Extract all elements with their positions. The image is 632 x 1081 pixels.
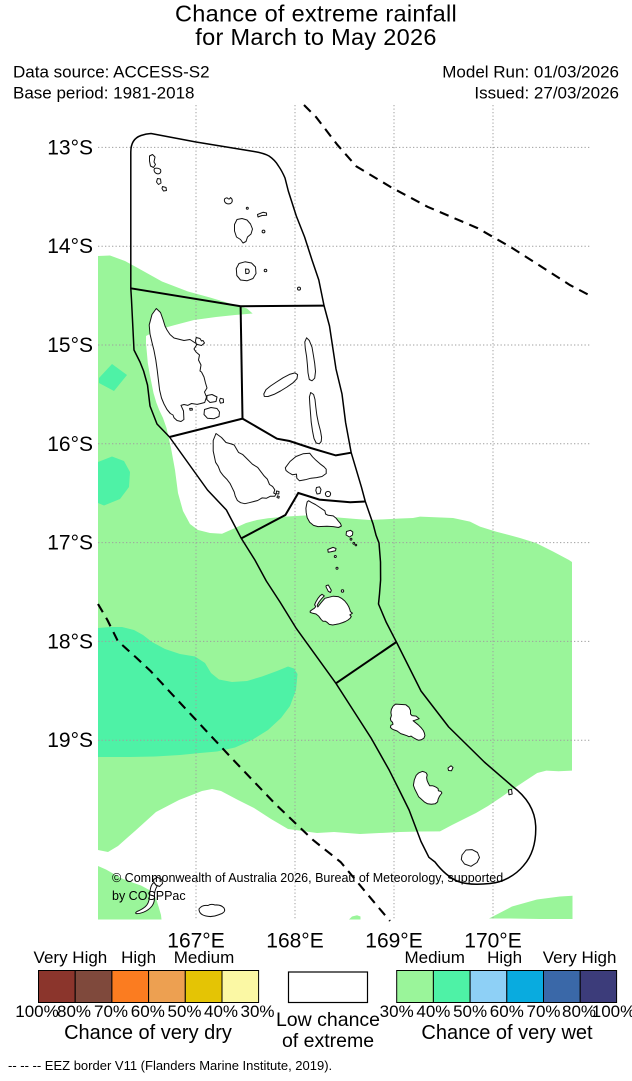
- svg-text:15°S: 15°S: [47, 334, 93, 357]
- svg-text:by COSPPac: by COSPPac: [112, 889, 186, 903]
- svg-text:of extreme: of extreme: [282, 1030, 374, 1052]
- svg-text:168°E: 168°E: [266, 930, 323, 953]
- svg-text:19°S: 19°S: [47, 729, 93, 752]
- svg-text:Base period: 1981-2018: Base period: 1981-2018: [13, 84, 194, 103]
- svg-text:Chance of very dry: Chance of very dry: [64, 1022, 232, 1044]
- svg-text:100%: 100%: [15, 1002, 58, 1021]
- svg-text:Very High: Very High: [34, 948, 108, 967]
- svg-text:30%: 30%: [380, 1002, 414, 1021]
- svg-text:Medium: Medium: [174, 948, 234, 967]
- svg-text:Data source: ACCESS-S2: Data source: ACCESS-S2: [13, 63, 210, 82]
- svg-text:30%: 30%: [240, 1002, 274, 1021]
- svg-text:Model Run: 01/03/2026: Model Run: 01/03/2026: [442, 63, 619, 82]
- svg-text:50%: 50%: [167, 1002, 201, 1021]
- svg-text:Medium: Medium: [404, 948, 464, 967]
- svg-text:40%: 40%: [204, 1002, 238, 1021]
- svg-text:High: High: [121, 948, 156, 967]
- svg-text:16°S: 16°S: [47, 433, 93, 456]
- svg-text:70%: 70%: [526, 1002, 560, 1021]
- svg-text:60%: 60%: [490, 1002, 524, 1021]
- svg-text:Chance of extreme rainfall: Chance of extreme rainfall: [175, 1, 457, 27]
- svg-text:High: High: [487, 948, 522, 967]
- svg-text:© Commonwealth of Australia 20: © Commonwealth of Australia 2026, Bureau…: [112, 871, 503, 885]
- svg-text:70%: 70%: [94, 1002, 128, 1021]
- svg-text:50%: 50%: [453, 1002, 487, 1021]
- svg-text:Chance of very wet: Chance of very wet: [421, 1022, 593, 1044]
- svg-text:100%: 100%: [592, 1002, 632, 1021]
- svg-text:for March to May 2026: for March to May 2026: [195, 24, 436, 50]
- svg-text:13°S: 13°S: [47, 136, 93, 159]
- svg-text:Very High: Very High: [543, 948, 617, 967]
- svg-text:14°S: 14°S: [47, 235, 93, 258]
- svg-text:60%: 60%: [131, 1002, 165, 1021]
- svg-text:18°S: 18°S: [47, 630, 93, 653]
- svg-text:17°S: 17°S: [47, 532, 93, 555]
- svg-text:Low chance: Low chance: [276, 1009, 380, 1031]
- svg-text:Issued: 27/03/2026: Issued: 27/03/2026: [474, 84, 619, 103]
- svg-text:40%: 40%: [416, 1002, 450, 1021]
- svg-text:80%: 80%: [57, 1002, 91, 1021]
- svg-text:-- -- -- EEZ border V11 (Fla: -- -- -- EEZ border V11 (Flanders Marine…: [8, 1058, 332, 1073]
